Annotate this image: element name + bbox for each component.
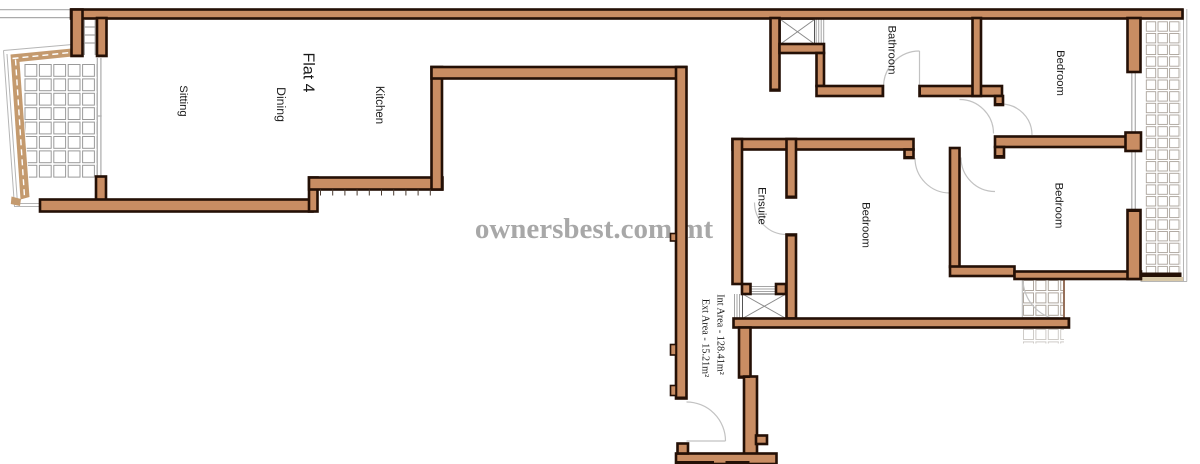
svg-text:Flat 4: Flat 4 <box>299 52 316 92</box>
svg-text:Bedroom: Bedroom <box>1053 183 1065 229</box>
svg-text:Kitchen: Kitchen <box>373 86 385 124</box>
svg-text:Bedroom: Bedroom <box>1054 50 1066 96</box>
svg-text:Int Area - 128.41m²: Int Area - 128.41m² <box>714 294 725 375</box>
svg-text:Ext Area - 15.21m²: Ext Area - 15.21m² <box>700 299 711 377</box>
svg-text:Ensuite: Ensuite <box>756 187 768 225</box>
svg-text:Bathroom: Bathroom <box>886 26 898 75</box>
svg-text:Dining: Dining <box>274 87 288 122</box>
svg-text:Sitting: Sitting <box>177 85 189 116</box>
svg-text:Bedroom: Bedroom <box>860 202 872 248</box>
